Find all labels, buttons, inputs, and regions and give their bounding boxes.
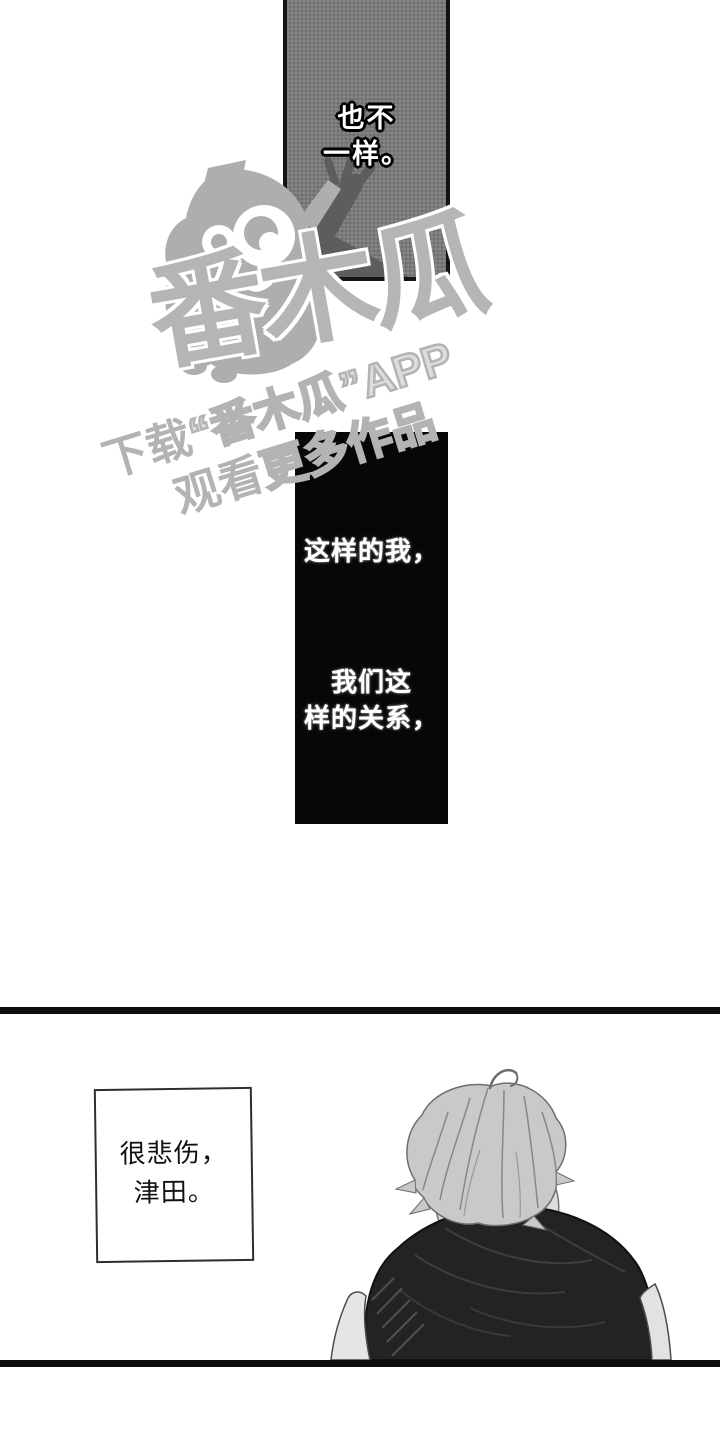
panel-bottom: 很悲伤， 津田。	[0, 1007, 720, 1367]
comic-page: 也不 一样。 这样的我， 我们这 样的关系， 番木瓜 下载“番木瓜”APP	[0, 0, 720, 1441]
middle-caption-1: 这样的我，	[295, 533, 448, 569]
slogan-solid-text: 观看	[168, 448, 269, 523]
caption-line: 样的关系，	[295, 700, 448, 736]
caption-line: 我们这	[295, 664, 448, 700]
slogan-solid-text: 下载	[97, 412, 198, 487]
caption-line: 一样。	[287, 136, 446, 172]
speech-line: 津田。	[97, 1172, 252, 1213]
panel-middle: 这样的我， 我们这 样的关系，	[295, 432, 448, 824]
middle-caption-2: 我们这 样的关系，	[295, 664, 448, 737]
panel-top-caption: 也不 一样。	[287, 100, 446, 173]
panel-top: 也不 一样。	[283, 0, 450, 281]
speech-text: 很悲伤， 津田。	[96, 1133, 251, 1213]
speech-line: 很悲伤，	[96, 1133, 251, 1174]
sweater-drawing	[365, 1205, 656, 1360]
hair-drawing	[396, 1070, 574, 1230]
character-drawing	[320, 1060, 680, 1360]
caption-line: 也不	[287, 100, 446, 136]
speech-box: 很悲伤， 津田。	[94, 1087, 254, 1263]
